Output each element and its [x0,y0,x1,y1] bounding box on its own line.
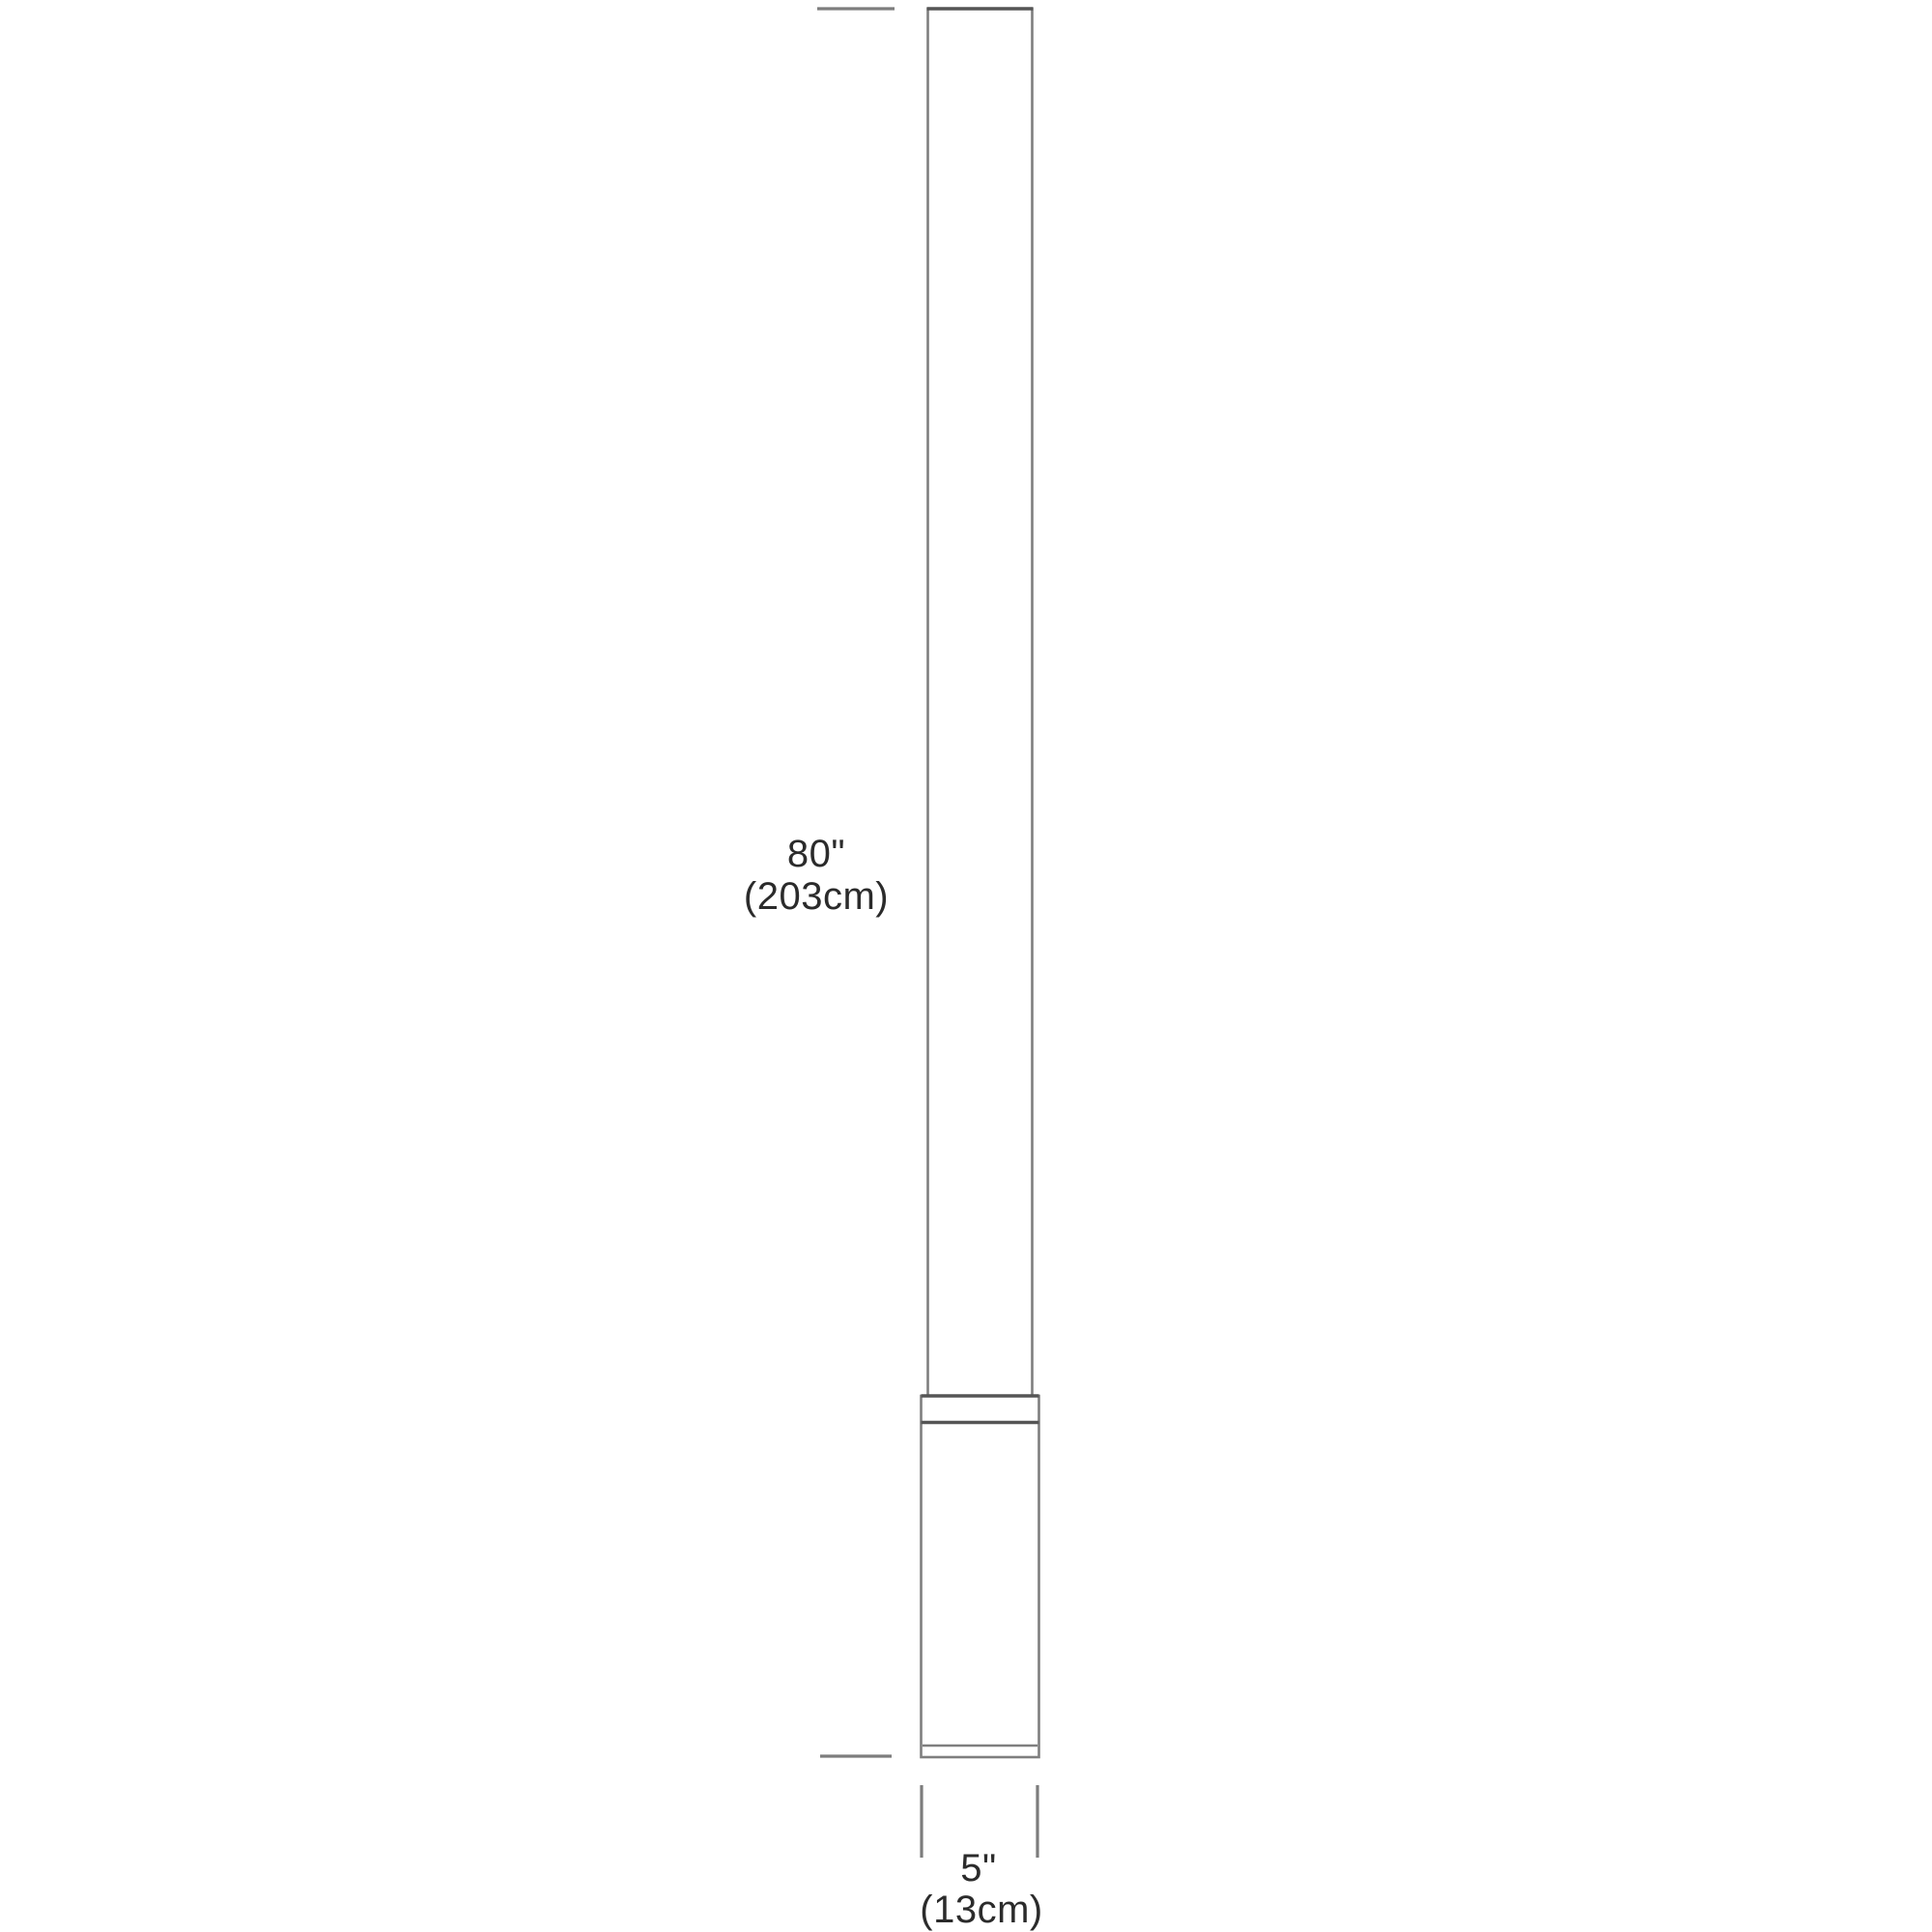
height-label-metric: (203cm) [744,875,889,918]
dimension-labels: 80" (203cm) 5" (13cm) [744,833,1043,1931]
height-label-inches: 80" [787,833,845,875]
diagram-canvas: 80" (203cm) 5" (13cm) [0,0,1932,1932]
lamp-base-outline [922,1396,1039,1757]
dimension-drawing: 80" (203cm) 5" (13cm) [0,0,1932,1932]
lamp-outline [922,9,1039,1757]
width-label-inches: 5" [960,1847,996,1889]
lamp-shaft-outline [928,9,1033,1396]
width-label-metric: (13cm) [920,1889,1042,1931]
